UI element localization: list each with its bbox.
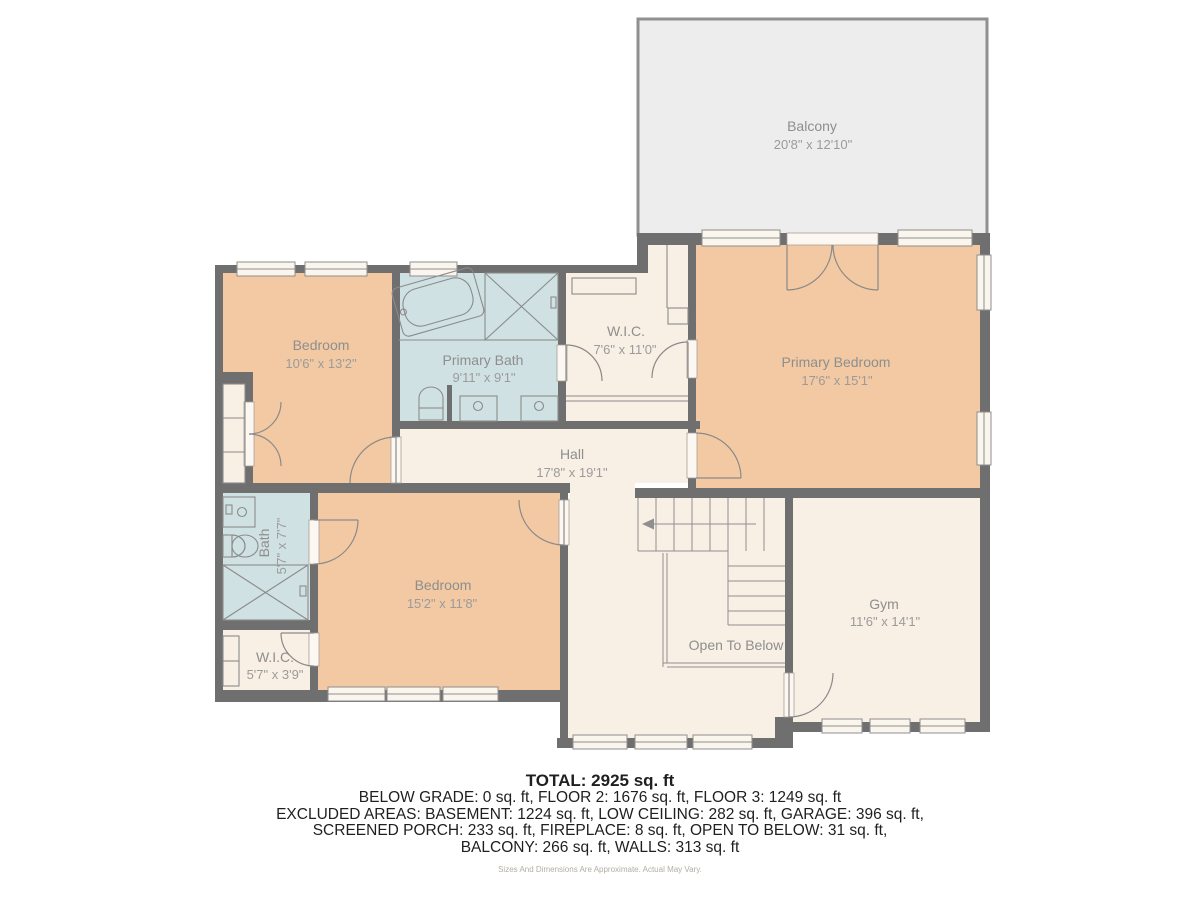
bedroom1-dims: 10'6" x 13'2": [285, 356, 357, 371]
total-area: TOTAL: 2925 sq. ft: [0, 771, 1200, 790]
gym-dims: 11'6" x 14'1": [850, 614, 921, 629]
floor-plan-page: Balcony 20'8" x 12'10" Bedroom 10'6" x 1…: [0, 0, 1200, 900]
wic-lower-dims: 5'7" x 3'9": [247, 667, 304, 682]
gym-label: Gym: [869, 596, 899, 612]
bedroom1-label: Bedroom: [293, 337, 350, 353]
landing-floor: [568, 498, 785, 738]
floor-plan-drawing: Balcony 20'8" x 12'10" Bedroom 10'6" x 1…: [0, 0, 1200, 765]
area-breakdown-line: EXCLUDED AREAS: BASEMENT: 1224 sq. ft, L…: [0, 807, 1200, 824]
area-breakdown-line: SCREENED PORCH: 233 sq. ft, FIREPLACE: 8…: [0, 823, 1200, 840]
primary-bedroom-dims: 17'6" x 15'1": [801, 373, 873, 388]
area-breakdown-line: BELOW GRADE: 0 sq. ft, FLOOR 2: 1676 sq.…: [0, 790, 1200, 807]
hall-opening-floor: [570, 483, 635, 499]
primary-bath-label: Primary Bath: [443, 352, 524, 368]
hall-dims: 17'8" x 19'1": [536, 465, 608, 480]
bedroom1-closet-floor: [223, 384, 245, 483]
bath-dims: 5'7" x 7'7": [274, 517, 289, 574]
primary-bedroom-label: Primary Bedroom: [782, 354, 891, 370]
bedroom2-label: Bedroom: [415, 577, 472, 593]
primary-bath-dims: 9'11" x 9'1": [452, 370, 515, 385]
wic-upper-label: W.I.C.: [607, 323, 645, 339]
open-to-below-label: Open To Below: [689, 637, 785, 653]
balcony-label: Balcony: [787, 118, 837, 134]
balcony-dims: 20'8" x 12'10": [774, 137, 853, 152]
wic-lower-label: W.I.C.: [256, 649, 294, 665]
bath-label: Bath: [256, 529, 272, 558]
hall-label: Hall: [560, 446, 584, 462]
area-breakdown-line: BALCONY: 266 sq. ft, WALLS: 313 sq. ft: [0, 840, 1200, 857]
area-summary: TOTAL: 2925 sq. ft BELOW GRADE: 0 sq. ft…: [0, 771, 1200, 874]
bedroom2-dims: 15'2" x 11'8": [407, 596, 478, 611]
disclaimer: Sizes And Dimensions Are Approximate. Ac…: [0, 865, 1200, 874]
wic-upper-dims: 7'6" x 11'0": [593, 342, 656, 357]
